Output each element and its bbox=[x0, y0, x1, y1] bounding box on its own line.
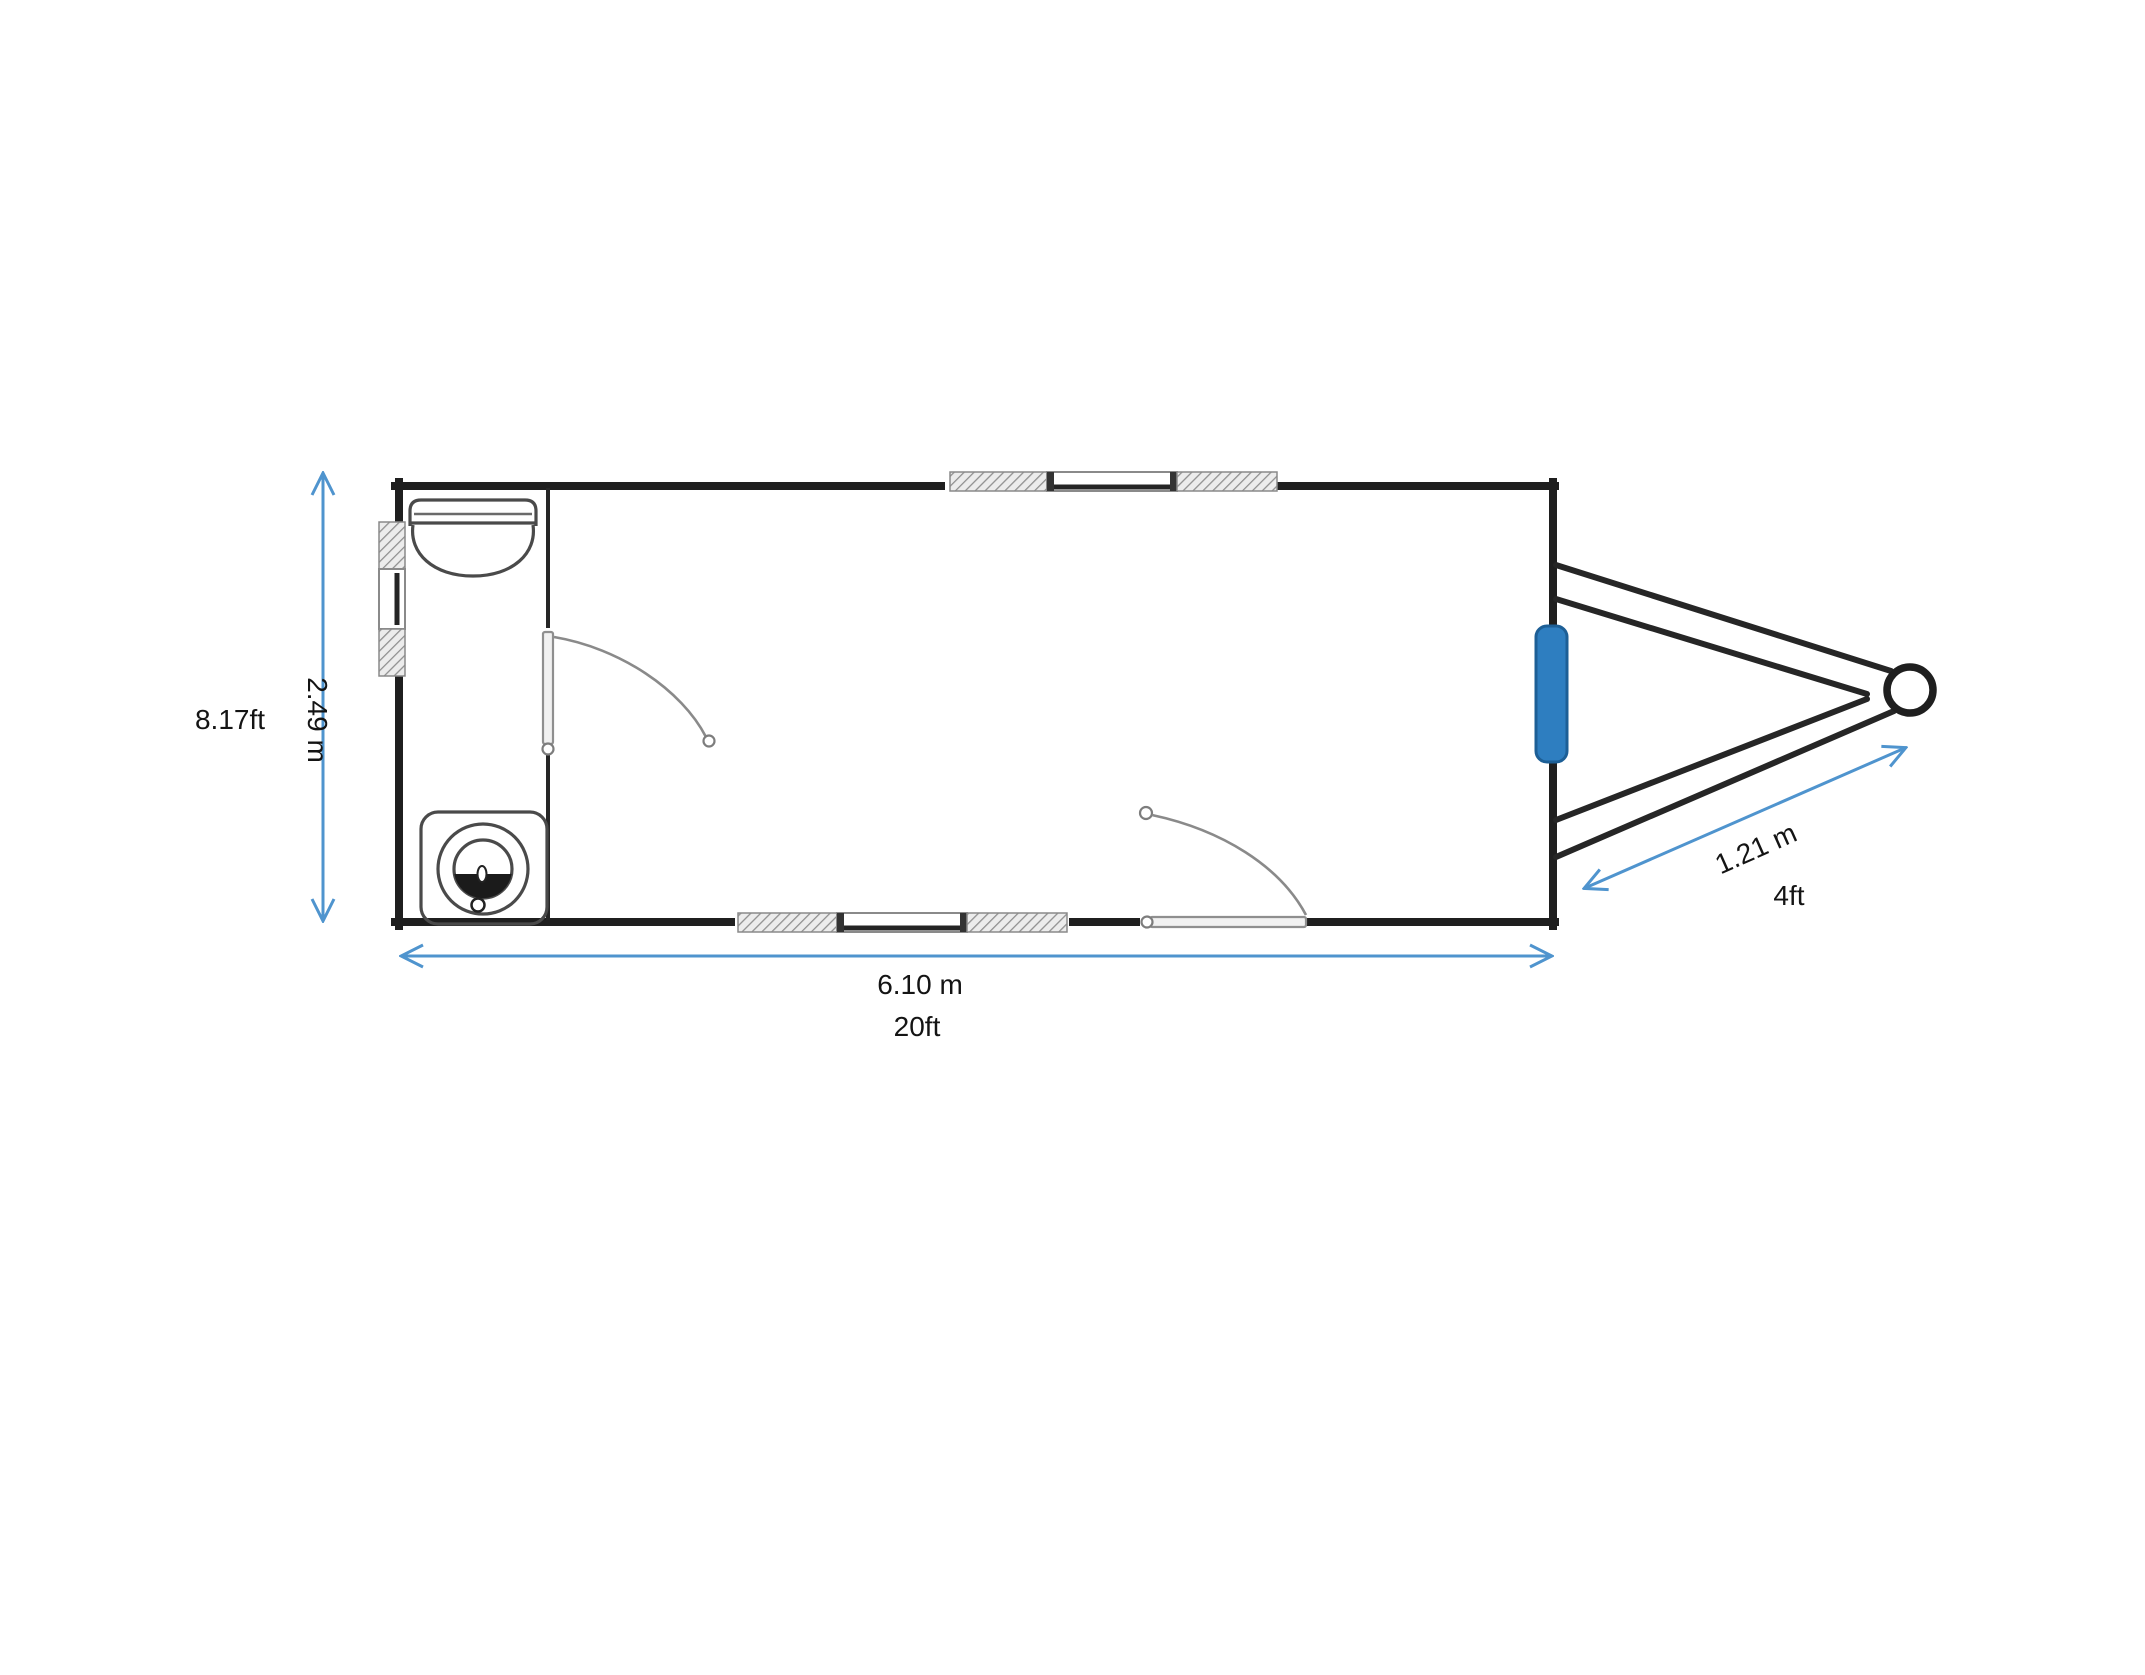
window-top-wall bbox=[950, 472, 1277, 491]
tongue-pad bbox=[1536, 626, 1567, 762]
dimension-label-length-imperial: 20ft bbox=[894, 1013, 941, 1041]
sink bbox=[410, 500, 536, 576]
floor-plan-drawing bbox=[0, 0, 2145, 1675]
entry-door bbox=[1140, 807, 1306, 928]
window-bottom-wall bbox=[738, 913, 1067, 932]
window-left-wall bbox=[379, 522, 405, 676]
dimension-label-length-metric: 6.10 m bbox=[877, 971, 963, 999]
toilet bbox=[421, 812, 547, 924]
hitch-coupler bbox=[1887, 667, 1933, 713]
trailer-body-outline bbox=[395, 482, 1555, 926]
dimension-label-width-imperial: 8.17ft bbox=[195, 706, 265, 734]
dimension-label-tongue-imperial: 4ft bbox=[1773, 882, 1804, 910]
interior-door bbox=[543, 632, 715, 755]
floor-plan-page: 8.17ft 2.49 m 6.10 m 20ft 1.21 m 4ft bbox=[0, 0, 2145, 1675]
dimension-label-width-metric: 2.49 m bbox=[303, 677, 331, 763]
a-frame-drawbar bbox=[1556, 565, 1933, 857]
